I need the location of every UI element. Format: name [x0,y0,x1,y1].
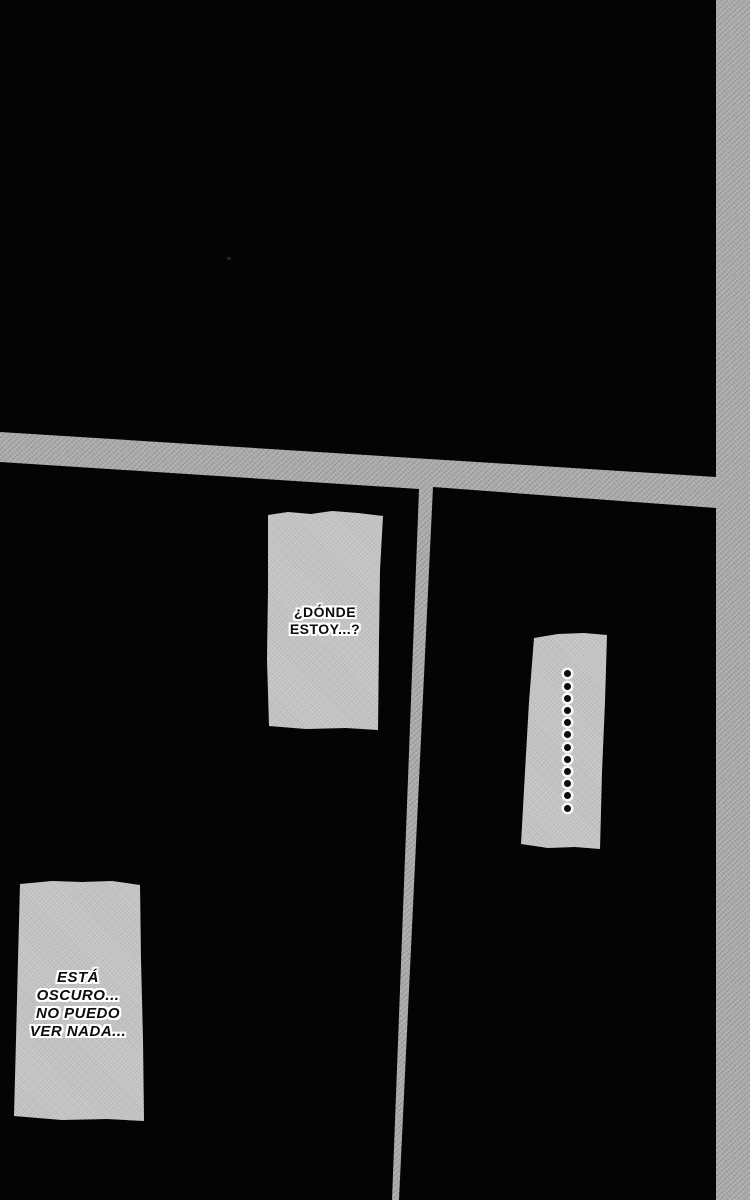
caption-text-where-am-i: ¿DÓNDE ESTOY...? [290,604,360,638]
manga-page: ¿DÓNDE ESTOY...? ESTÁ OSCURO... NO PUEDO… [0,0,750,1200]
silence-dot [564,768,571,775]
caption-box-its-dark: ESTÁ OSCURO... NO PUEDO VER NADA... [12,880,144,1122]
silence-dot [564,780,571,787]
caption-box-silence [520,632,608,850]
caption-line: VER NADA... [30,1023,126,1041]
caption-text-its-dark: ESTÁ OSCURO... NO PUEDO VER NADA... [30,969,126,1041]
caption-line: ESTOY...? [290,621,360,638]
silence-dot [564,683,571,690]
scan-speck [227,257,231,260]
silence-dot [564,670,571,677]
silence-dot [564,792,571,799]
silence-dot [564,707,571,714]
silence-dots [564,668,571,814]
silence-dot [564,719,571,726]
silence-dot [564,744,571,751]
silence-dot [564,756,571,763]
silence-dot [564,695,571,702]
caption-line: ¿DÓNDE [290,604,360,621]
silence-dot [564,805,571,812]
caption-line: ESTÁ [30,969,126,987]
caption-box-where-am-i: ¿DÓNDE ESTOY...? [266,510,384,731]
silence-dot [564,731,571,738]
caption-line: OSCURO... [30,987,126,1005]
caption-line: NO PUEDO [30,1005,126,1023]
